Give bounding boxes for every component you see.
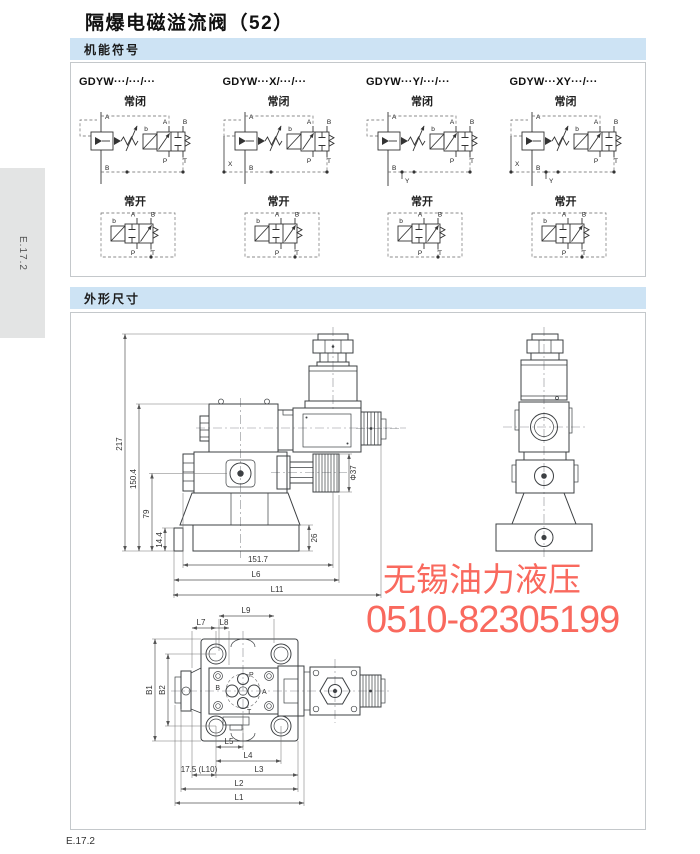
symbol-column-2: GDYW···X/···/··· 常闭 ABbABPTX 常开 bABPT	[215, 63, 359, 276]
dim-151-7: 151.7	[248, 555, 269, 564]
valve-port-a: A	[561, 212, 566, 219]
port-label-a: A	[262, 689, 267, 696]
model-code-label: GDYW···X/···/···	[223, 76, 359, 88]
valve-port-a: A	[306, 119, 311, 126]
dim-l9: L9	[242, 606, 251, 615]
dim-l3: L3	[255, 765, 264, 774]
section-header-function-symbols: 机能符号	[70, 38, 646, 60]
dim-l2: L2	[235, 779, 244, 788]
normally-closed-schematic: ABbABPTY	[362, 110, 490, 188]
coil-label-b: b	[256, 218, 260, 225]
page-number: E.17.2	[66, 836, 95, 847]
section-header-outline-dimensions: 外形尺寸	[70, 287, 646, 309]
dim-l5: L5	[225, 737, 234, 746]
valve-port-b: B	[294, 212, 298, 219]
valve-port-a: A	[274, 212, 279, 219]
dim-14-4: 14.4	[155, 532, 164, 548]
coil-label-b: b	[399, 218, 403, 225]
port-label-a: A	[392, 114, 397, 121]
valve-port-t: T	[183, 158, 187, 165]
model-code-label: GDYW···XY···/···	[510, 76, 646, 88]
port-label-a: A	[536, 114, 541, 121]
normally-open-label: 常开	[510, 193, 622, 209]
front-view-drawing	[174, 327, 406, 558]
valve-port-t: T	[470, 158, 474, 165]
valve-port-b: B	[581, 212, 585, 219]
valve-port-a: A	[418, 212, 423, 219]
normally-open-label: 常开	[223, 193, 335, 209]
symbol-column-3: GDYW···Y/···/··· 常闭 ABbABPTY 常开 bABPT	[358, 63, 502, 276]
dim-l11: L11	[271, 585, 284, 594]
watermark-company-name: 无锡油力液压	[383, 563, 581, 596]
valve-port-p: P	[274, 250, 278, 257]
dim-l1: L1	[235, 793, 244, 802]
drain-label-x: X	[228, 161, 233, 168]
port-label-b: B	[105, 165, 109, 172]
coil-label-b: b	[144, 126, 148, 133]
normally-closed-label: 常闭	[223, 93, 335, 109]
valve-port-a: A	[131, 212, 136, 219]
dim-l8: L8	[220, 618, 229, 627]
port-label-a: A	[105, 114, 110, 121]
dim-17-5-l10: 17.5 (L10)	[181, 765, 218, 774]
normally-closed-label: 常闭	[366, 93, 478, 109]
valve-port-a: A	[593, 119, 598, 126]
bottom-view-dimensions: L9 L7 L8 B1 B2 L5 L4 17.5 (L10) L3 L2 L1	[145, 606, 304, 806]
valve-port-p: P	[450, 158, 454, 165]
valve-port-p: P	[131, 250, 135, 257]
normally-closed-schematic: ABbABPTX	[219, 110, 347, 188]
dim-217: 217	[115, 437, 124, 451]
valve-port-a: A	[163, 119, 168, 126]
port-label-t: T	[247, 709, 252, 716]
normally-open-schematic: bABPT	[87, 210, 191, 266]
dim-phi37: Φ37	[349, 465, 358, 481]
dim-l6: L6	[252, 570, 261, 579]
valve-port-p: P	[306, 158, 310, 165]
model-code-label: GDYW···Y/···/···	[366, 76, 502, 88]
drain-label-y: Y	[549, 178, 554, 185]
normally-closed-schematic: ABbABPTXY	[506, 110, 634, 188]
valve-port-b: B	[470, 119, 474, 126]
drain-label-x: X	[515, 161, 520, 168]
dim-b2: B2	[158, 685, 167, 695]
port-label-b: B	[249, 165, 253, 172]
normally-open-schematic: bABPT	[518, 210, 622, 266]
dim-l4: L4	[244, 751, 253, 760]
coil-label-b: b	[431, 126, 435, 133]
coil-label-b: b	[575, 126, 579, 133]
normally-closed-label: 常闭	[510, 93, 622, 109]
port-label-a: A	[249, 114, 254, 121]
page-index-label: E.17.2	[17, 236, 28, 271]
valve-port-b: B	[438, 212, 442, 219]
port-label-b: B	[215, 685, 220, 692]
normally-open-label: 常开	[366, 193, 478, 209]
valve-port-b: B	[183, 119, 187, 126]
port-label-b: B	[392, 165, 396, 172]
symbol-column-4: GDYW···XY···/··· 常闭 ABbABPTXY 常开 bABPT	[502, 63, 646, 276]
valve-port-p: P	[593, 158, 597, 165]
function-symbols-box: GDYW···/···/··· 常闭 ABbABPT 常开 bABPT GDYW…	[70, 62, 646, 277]
normally-open-label: 常开	[79, 193, 191, 209]
port-label-p: P	[249, 672, 254, 679]
symbol-column-1: GDYW···/···/··· 常闭 ABbABPT 常开 bABPT	[71, 63, 215, 276]
valve-port-p: P	[163, 158, 167, 165]
dim-l7: L7	[197, 618, 206, 627]
valve-port-a: A	[450, 119, 455, 126]
coil-label-b: b	[543, 218, 547, 225]
dim-150-4: 150.4	[129, 468, 138, 489]
valve-port-t: T	[614, 158, 618, 165]
watermark-phone-number: 0510-82305199	[366, 601, 619, 639]
normally-open-schematic: bABPT	[374, 210, 478, 266]
dim-79: 79	[142, 509, 151, 518]
valve-port-b: B	[613, 119, 617, 126]
dim-b1: B1	[145, 685, 154, 695]
normally-closed-schematic: ABbABPT	[75, 110, 203, 188]
page-title: 隔爆电磁溢流阀（52）	[85, 8, 294, 35]
normally-closed-label: 常闭	[79, 93, 191, 109]
outline-dimensions-box: 217 150.4 79 14.4 Φ37 26 151.7 L6 L11	[70, 312, 646, 830]
page: { "page": { "title": "隔爆电磁溢流阀（52）", "sid…	[0, 0, 700, 854]
coil-label-b: b	[288, 126, 292, 133]
valve-port-p: P	[418, 250, 422, 257]
model-code-label: GDYW···/···/···	[79, 76, 215, 88]
coil-label-b: b	[112, 218, 116, 225]
port-label-b: B	[536, 165, 540, 172]
valve-port-b: B	[151, 212, 155, 219]
side-view-drawing	[496, 327, 592, 558]
dim-26: 26	[310, 533, 319, 542]
valve-port-t: T	[327, 158, 331, 165]
normally-open-schematic: bABPT	[231, 210, 335, 266]
page-index-tab: E.17.2	[0, 168, 45, 338]
valve-port-p: P	[561, 250, 565, 257]
drain-label-y: Y	[405, 178, 410, 185]
valve-port-b: B	[326, 119, 330, 126]
